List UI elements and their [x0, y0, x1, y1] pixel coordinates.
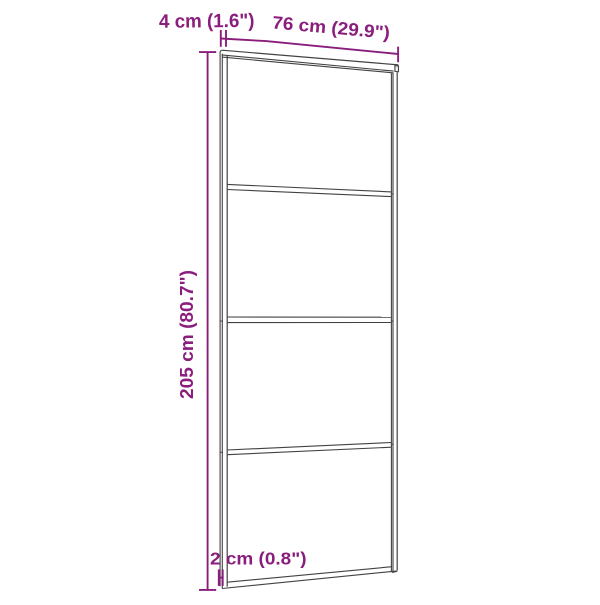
- svg-text:2 cm (0.8"): 2 cm (0.8"): [210, 548, 307, 568]
- svg-text:205 cm (80.7"): 205 cm (80.7"): [177, 270, 197, 399]
- svg-text:4 cm (1.6"): 4 cm (1.6"): [159, 11, 255, 33]
